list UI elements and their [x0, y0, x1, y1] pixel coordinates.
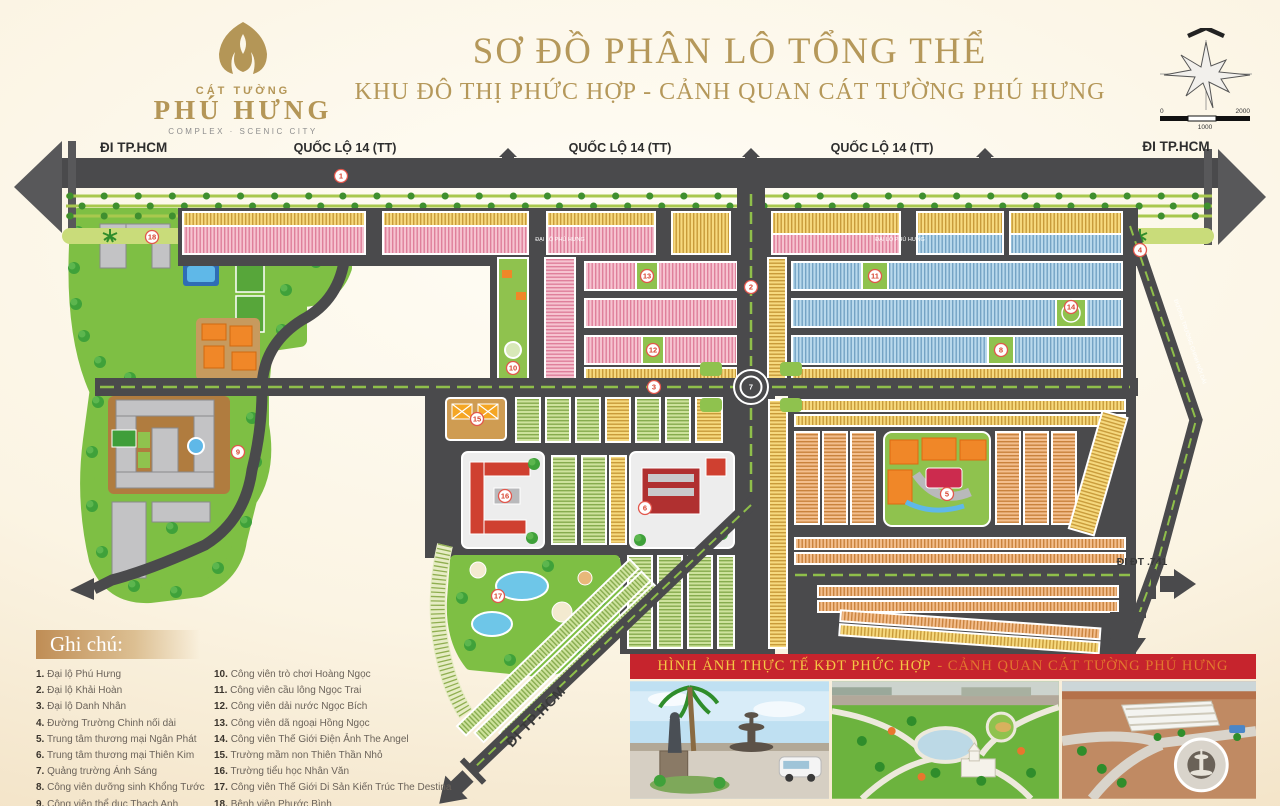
scale-1000: 1000 [1198, 124, 1213, 131]
marker-3: 3 [648, 381, 661, 394]
roundabout-green [700, 398, 722, 412]
legend-panel: Ghi chú: 1. Đại lộ Phú Hưng 2. Đại lộ Kh… [36, 630, 456, 806]
park-strip-building [516, 292, 526, 300]
marker-2: 2 [745, 281, 758, 294]
brand-sub: COMPLEX · SCENIC CITY [148, 127, 338, 136]
scale-0: 0 [1160, 108, 1164, 115]
legend-item: 11. Công viên cầu lông Ngọc Trai [214, 683, 456, 699]
legend-item: 4. Đường Trường Chinh nối dài [36, 716, 214, 732]
go-dt741-label: ĐI ĐT .741 [1117, 556, 1168, 568]
marker-5: 5 [941, 488, 954, 501]
svg-text:10: 10 [509, 364, 517, 373]
scale-2000: 2000 [1236, 108, 1251, 115]
legend-column-2: 10. Công viên trò chơi Hoàng Ngọc 11. Cô… [214, 667, 456, 806]
marker-16: 16 [499, 490, 512, 503]
marker-15: 15 [471, 413, 484, 426]
masterplan-poster: ĐƯỜNG TRƯỜNG CHINH NỐI DÀI [0, 0, 1280, 806]
legend-item: 3. Đại lộ Danh Nhân [36, 699, 214, 715]
north-chevron-icon [1188, 28, 1224, 36]
svg-text:7: 7 [749, 383, 753, 392]
legend-item: 10. Công viên trò chơi Hoàng Ngọc [214, 667, 456, 683]
marker-14: 14 [1065, 301, 1078, 314]
legend-item: 8. Công viên dưỡng sinh Khổng Tước [36, 780, 214, 796]
marker-7: 7 [745, 381, 757, 393]
legend-item: 15. Trường mầm non Thiên Thần Nhỏ [214, 748, 456, 764]
compass-rose: 0 2000 1000 [1150, 28, 1262, 137]
real-photos-section: HÌNH ẢNH THỰC TẾ KĐT PHỨC HỢP - CẢNH QUA… [630, 654, 1256, 799]
poster-title: SƠ ĐỒ PHÂN LÔ TỔNG THỂ KHU ĐÔ THỊ PHỨC H… [340, 30, 1120, 106]
brand-logo: CÁT TƯỜNG PHÚ HƯNG COMPLEX · SCENIC CITY [148, 20, 338, 138]
legend-item: 9. Công viên thể dục Thạch Anh [36, 797, 214, 806]
svg-text:6: 6 [643, 504, 647, 513]
photos-banner: HÌNH ẢNH THỰC TẾ KĐT PHỨC HỢP - CẢNH QUA… [630, 654, 1256, 679]
legend-item: 6. Trung tâm thương mại Thiên Kim [36, 748, 214, 764]
avenue-phu-hung-label: ĐẠI LỘ PHÚ HƯNG [875, 236, 925, 243]
marker-18: 18 [146, 231, 159, 244]
marker-9: 9 [232, 446, 245, 459]
legend-item: 14. Công viên Thế Giới Điện Ảnh The Ange… [214, 732, 456, 748]
ql14-label-3: QUỐC LỘ 14 (TT) [831, 140, 934, 155]
legend-item: 7. Quảng trường Ánh Sáng [36, 764, 214, 780]
marker-6: 6 [639, 502, 652, 515]
ql14-label-2: QUỐC LỘ 14 (TT) [569, 140, 672, 155]
title-line-2: KHU ĐÔ THỊ PHỨC HỢP - CẢNH QUAN CÁT TƯỜN… [340, 79, 1120, 106]
marker-11: 11 [869, 270, 882, 283]
brand-main: PHÚ HƯNG [148, 97, 338, 124]
svg-text:13: 13 [643, 272, 651, 281]
roundabout-green [780, 362, 802, 376]
legend-item: 16. Trường tiểu học Nhân Văn [214, 764, 456, 780]
title-line-1: SƠ ĐỒ PHÂN LÔ TỔNG THỂ [340, 30, 1120, 73]
park-plaza-circle [505, 342, 521, 358]
legend-item: 18. Bệnh viện Phước Bình [214, 797, 456, 806]
legend-column-1: 1. Đại lộ Phú Hưng 2. Đại lộ Khải Hoàn 3… [36, 667, 214, 806]
marker-10: 10 [507, 362, 520, 375]
svg-text:1: 1 [339, 172, 343, 181]
svg-text:11: 11 [871, 272, 879, 281]
legend-item: 17. Công viên Thế Giới Di Sản Kiến Trúc … [214, 780, 456, 796]
legend-item: 1. Đại lộ Phú Hưng [36, 667, 214, 683]
lot-blocks-top-row [183, 212, 1122, 254]
svg-text:3: 3 [652, 383, 656, 392]
lotus-emblem-icon [211, 20, 275, 78]
legend-item: 12. Công viên dải nước Ngọc Bích [214, 699, 456, 715]
svg-text:12: 12 [649, 346, 657, 355]
legend-item: 2. Đại lộ Khải Hoàn [36, 683, 214, 699]
svg-text:5: 5 [945, 490, 949, 499]
svg-text:16: 16 [501, 492, 509, 501]
legend-item: 5. Trung tâm thương mại Ngân Phát [36, 732, 214, 748]
go-hcmc-left-label: ĐI TP.HCM [100, 140, 167, 155]
photo-roundabout-aerial [1062, 681, 1256, 799]
marker-8: 8 [995, 344, 1008, 357]
svg-text:14: 14 [1067, 303, 1076, 312]
svg-text:17: 17 [494, 592, 502, 601]
go-hcmc-right-label: ĐI TP.HCM [1142, 139, 1209, 154]
svg-text:15: 15 [473, 415, 481, 424]
svg-text:18: 18 [148, 233, 156, 242]
svg-text:8: 8 [999, 346, 1003, 355]
svg-text:9: 9 [236, 448, 240, 457]
legend-item: 13. Công viên dã ngoại Hồng Ngọc [214, 716, 456, 732]
park-thach-anh-apartments [86, 388, 264, 598]
ql14-label-1: QUỐC LỘ 14 (TT) [294, 140, 397, 155]
park-exit-arrow-icon [70, 578, 94, 600]
roundabout-green [780, 398, 802, 412]
park-strip-building [502, 270, 512, 278]
marker-4: 4 [1134, 244, 1147, 257]
marker-12: 12 [647, 344, 660, 357]
photo-park-aerial [832, 681, 1059, 799]
lot-blocks-right [768, 258, 1122, 380]
photo-statue-fountain [630, 681, 829, 799]
avenue-phu-hung-label: ĐẠI LỘ PHÚ HƯNG [535, 236, 585, 243]
roundabout-green [700, 362, 722, 376]
mall-ngan-phat [884, 432, 990, 526]
wind-rose-icon [1164, 42, 1250, 108]
marker-17: 17 [492, 590, 505, 603]
svg-text:2: 2 [749, 283, 753, 292]
banner-text-2: - CẢNH QUAN CÁT TƯỜNG PHÚ HƯNG [937, 658, 1228, 675]
banner-text-1: HÌNH ẢNH THỰC TẾ KĐT PHỨC HỢP [657, 658, 931, 675]
marker-1: 1 [335, 170, 348, 183]
marker-13: 13 [641, 270, 654, 283]
legend-title: Ghi chú: [36, 630, 200, 659]
